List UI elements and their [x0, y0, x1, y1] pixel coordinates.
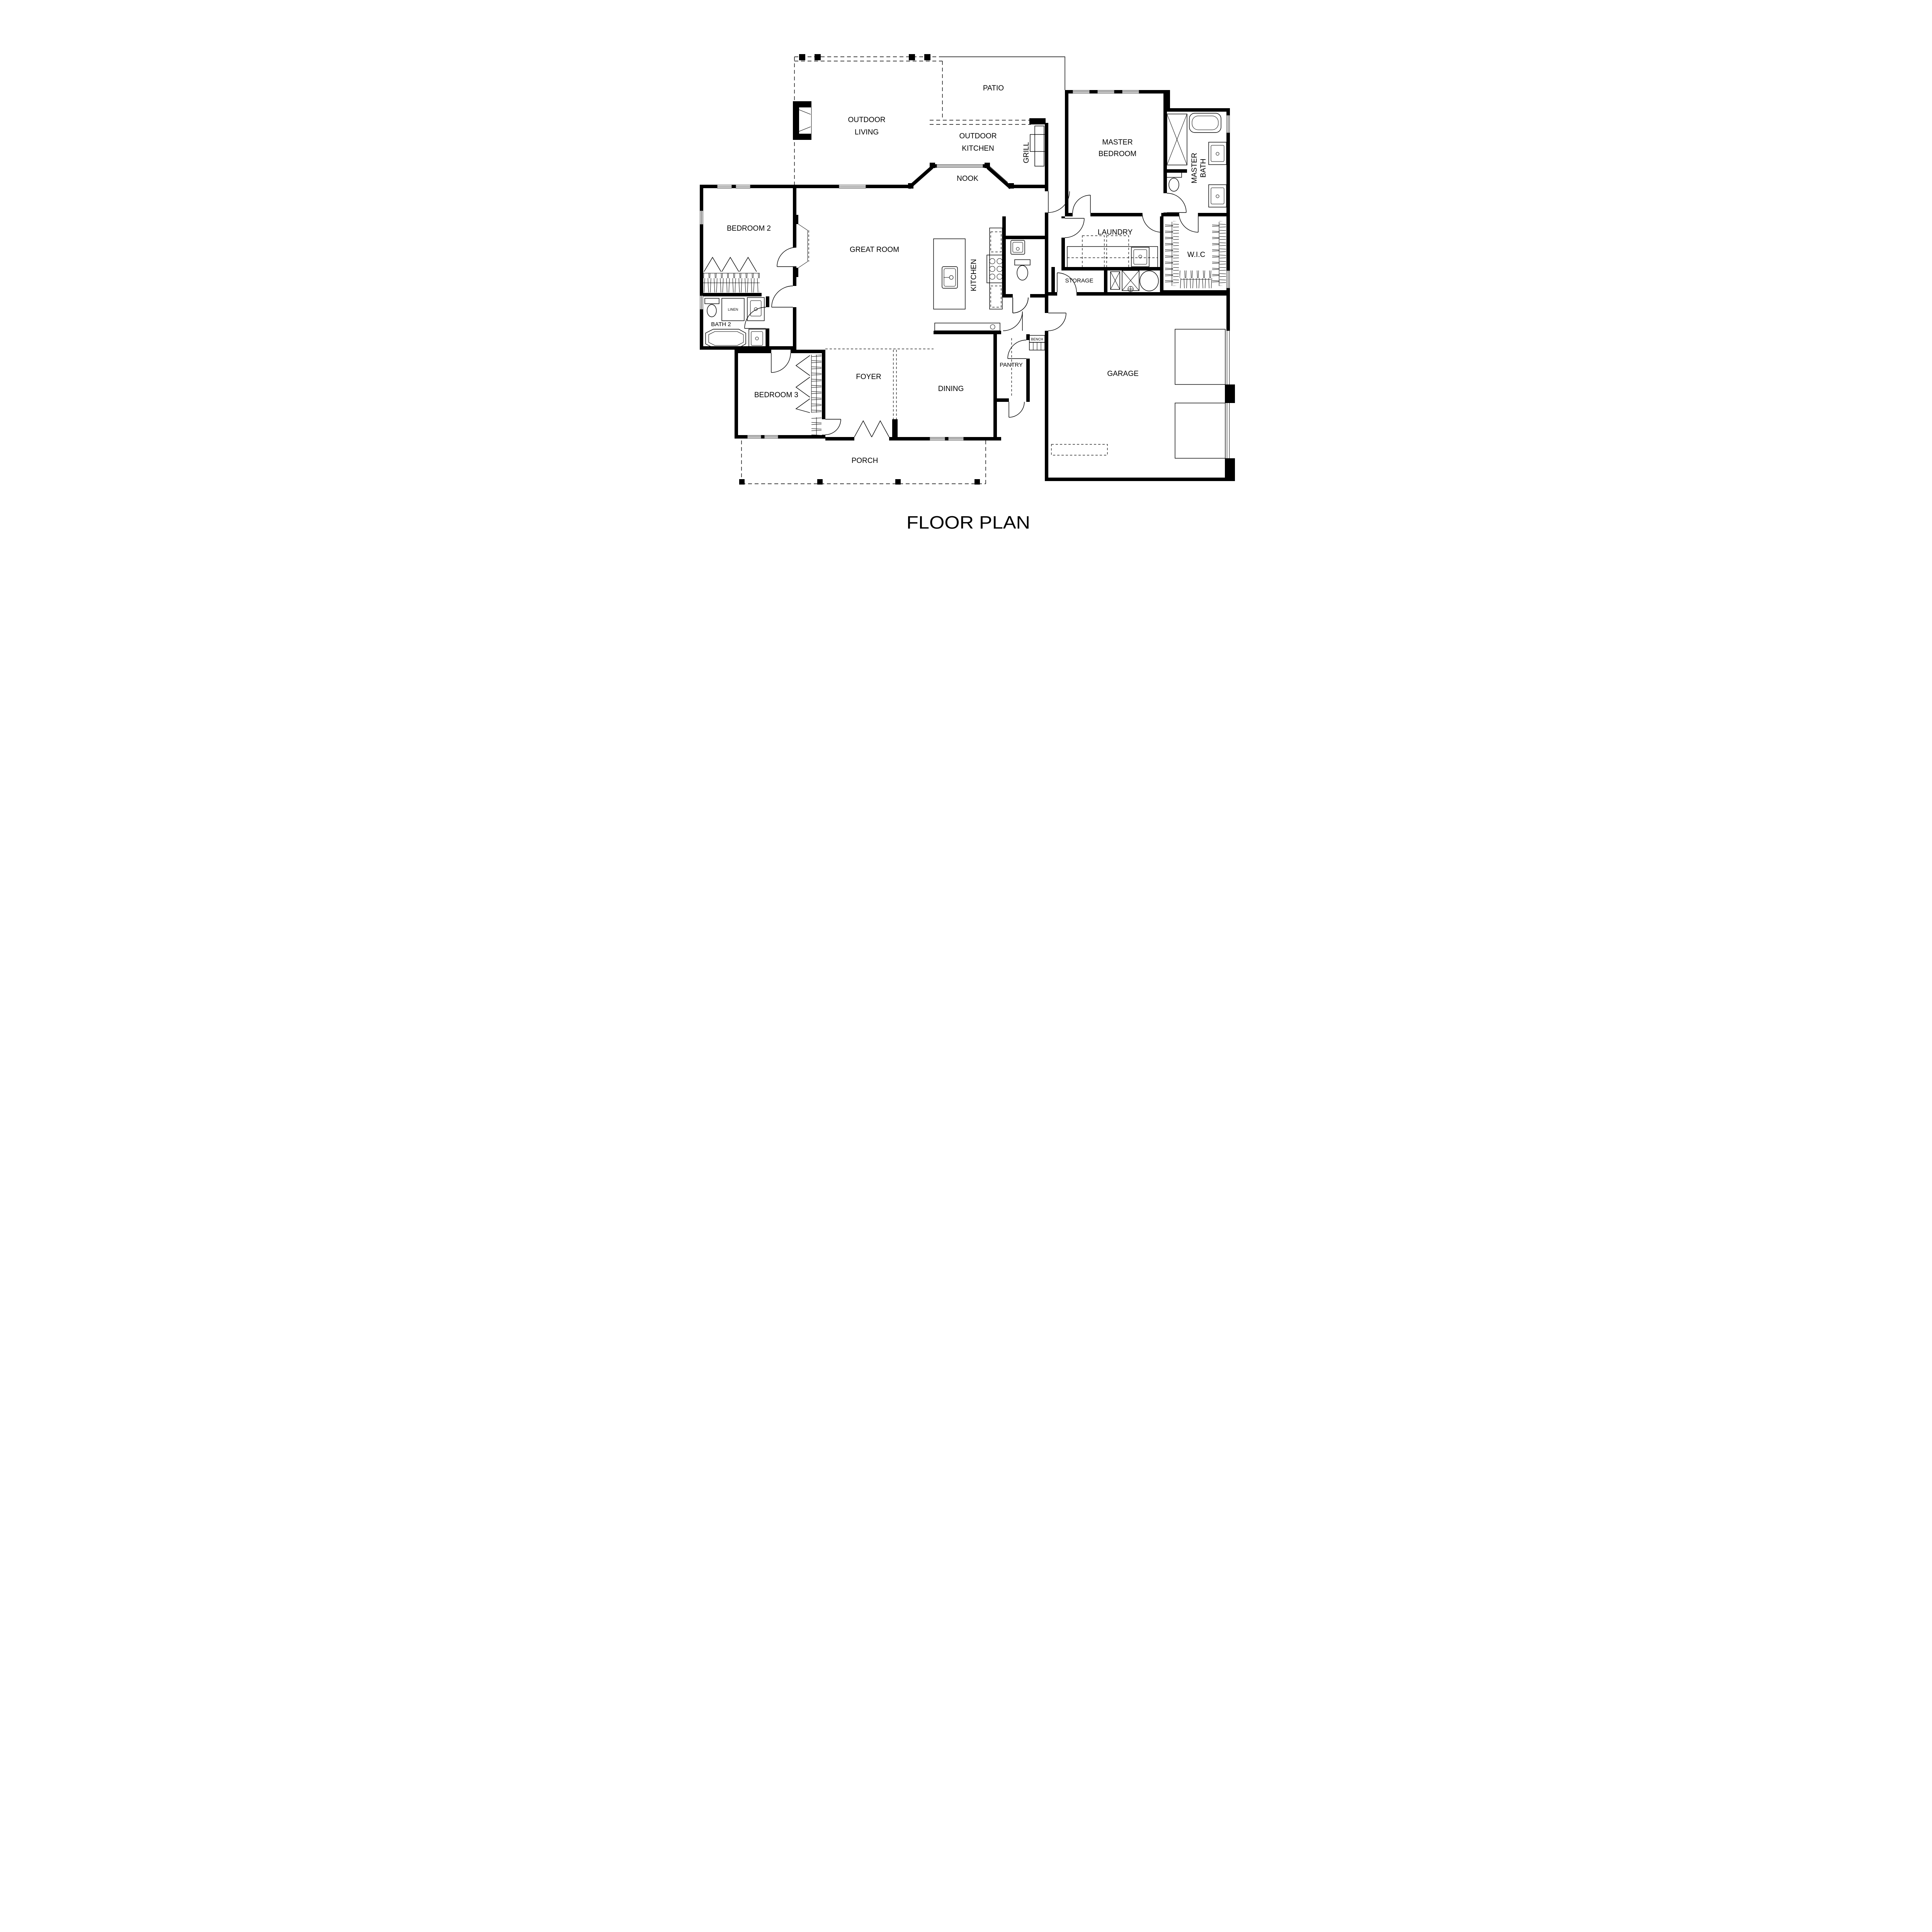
room-label-kitchen: KITCHEN — [970, 259, 978, 291]
washer — [1082, 236, 1104, 268]
room-labels: PATIO OUTDOOR LIVING OUTDOOR KITCHEN NOO… — [711, 84, 1207, 465]
room-label-grill: GRILL — [1022, 142, 1031, 163]
porch-post — [975, 479, 980, 485]
room-label-laundry: LAUNDRY — [1098, 228, 1133, 236]
garage-doors — [1175, 329, 1230, 458]
room-label-great-room: GREAT ROOM — [850, 246, 899, 254]
porch-post — [739, 479, 745, 485]
great-room-top-window — [839, 185, 866, 188]
bedroom2-left-window — [700, 211, 703, 224]
bath2-left-window — [700, 296, 703, 310]
floor-plan-drawing: PATIO OUTDOOR LIVING OUTDOOR KITCHEN NOO… — [663, 0, 1269, 553]
room-label-dining: DINING — [938, 385, 964, 393]
laundry-sink — [1131, 247, 1149, 267]
powder-toilet-bowl — [1017, 265, 1028, 280]
water-heater-mechanical — [1111, 270, 1158, 292]
garage-door-panel — [1175, 403, 1225, 458]
room-label-master-bedroom-1: MASTER — [1102, 138, 1133, 146]
room-label-bedroom2: BEDROOM 2 — [727, 224, 771, 233]
floor-plan-page: PATIO OUTDOOR LIVING OUTDOOR KITCHEN NOO… — [663, 0, 1269, 553]
room-label-porch: PORCH — [852, 457, 878, 465]
bath2-toilet-bowl — [707, 304, 716, 317]
room-label-bench: BENCH — [1031, 337, 1043, 341]
room-label-outdoor-kitchen-1: OUTDOOR — [959, 132, 997, 140]
master-toilet-bowl — [1169, 178, 1179, 191]
porch-post — [817, 479, 823, 485]
room-label-foyer: FOYER — [856, 373, 881, 381]
room-label-master-bath-2: BATH — [1199, 158, 1207, 177]
room-label-outdoor-living-1: OUTDOOR — [848, 116, 885, 124]
dryer — [1107, 236, 1129, 268]
fireplace — [793, 101, 811, 140]
bath2-vanity-1 — [747, 298, 764, 321]
windows — [700, 90, 1230, 440]
room-label-patio: PATIO — [983, 84, 1004, 92]
laundry-fixtures — [1067, 236, 1158, 268]
room-label-master-bath-1: MASTER — [1190, 153, 1199, 183]
page-title: FLOOR PLAN — [906, 512, 1030, 532]
bedroom2-closet — [703, 257, 760, 293]
room-label-master-bedroom-2: BEDROOM — [1099, 150, 1136, 158]
kitchen-island — [934, 239, 965, 309]
room-label-nook: NOOK — [957, 175, 978, 183]
room-label-pantry: PANTRY — [1000, 362, 1022, 368]
bath2-tub — [706, 329, 746, 348]
room-label-garage: GARAGE — [1107, 370, 1138, 378]
room-label-bath2: BATH 2 — [711, 321, 731, 328]
room-label-bedroom3: BEDROOM 3 — [754, 391, 798, 399]
garage-door-panel — [1175, 329, 1225, 384]
room-label-outdoor-living-2: LIVING — [855, 128, 879, 136]
room-label-wic: W.I.C — [1187, 251, 1205, 259]
coat-closet — [811, 417, 821, 436]
grill-counter — [1030, 126, 1046, 166]
master-toilet-tank — [1166, 172, 1182, 177]
bedroom3-closet — [796, 355, 821, 413]
kitchen-sink-counter — [935, 323, 1000, 331]
kitchen-counter-range — [987, 228, 1005, 309]
bath2-toilet-tank — [705, 298, 719, 304]
powder-room — [1011, 240, 1030, 280]
room-label-outdoor-kitchen-2: KITCHEN — [962, 145, 994, 153]
powder-toilet-tank — [1015, 260, 1030, 265]
porch-post — [895, 479, 901, 485]
room-label-storage: STORAGE — [1065, 277, 1093, 284]
room-label-linen: LINEN — [728, 308, 738, 311]
master-bedroom-windows — [1073, 90, 1139, 94]
outdoor-kitchen-roofline — [930, 118, 1046, 124]
